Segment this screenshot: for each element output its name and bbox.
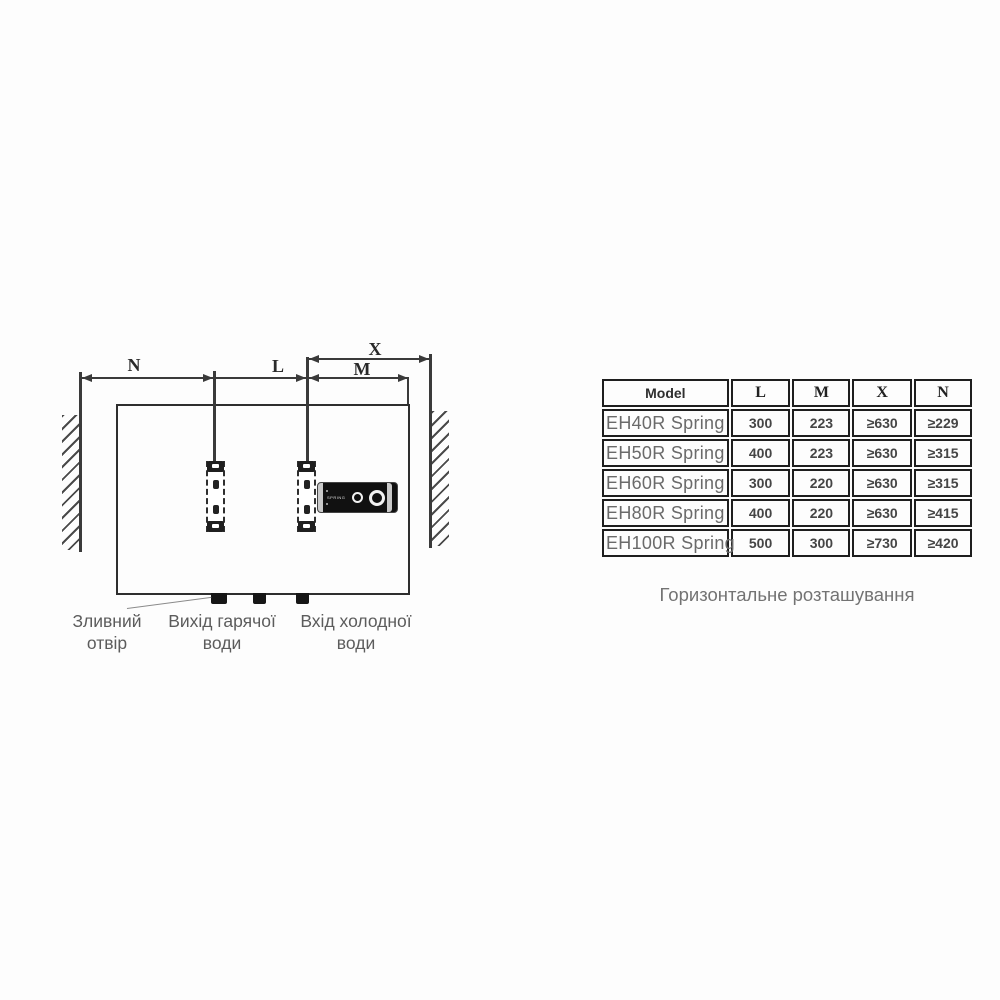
- model-name: EH40R Spring: [602, 409, 729, 437]
- panel-indicator-dot: [326, 490, 328, 492]
- model-name: EH60R Spring: [602, 469, 729, 497]
- mounting-bracket-right: [297, 461, 316, 532]
- orientation-caption: Горизонтальне розташування: [600, 584, 974, 606]
- value-n: ≥420: [914, 529, 972, 557]
- value-l: 400: [731, 499, 791, 527]
- bracket-bottom-cap: [298, 521, 315, 532]
- value-m: 300: [792, 529, 850, 557]
- value-x: ≥630: [852, 469, 912, 497]
- dim-arrow-m-right: [398, 374, 408, 382]
- bracket-bottom-cap: [207, 521, 224, 532]
- col-header-x: X: [852, 379, 912, 407]
- label-drain-line1: Зливний: [52, 610, 162, 632]
- value-l: 500: [731, 529, 791, 557]
- value-m: 220: [792, 469, 850, 497]
- spec-table: Model L M X N EH40R Spring 300 223 ≥630 …: [600, 377, 974, 559]
- value-l: 400: [731, 439, 791, 467]
- col-header-l: L: [731, 379, 791, 407]
- dim-arrow-n-right: [203, 374, 213, 382]
- model-name: EH80R Spring: [602, 499, 729, 527]
- bracket-slot: [212, 524, 219, 528]
- dim-arrow-l-right: [296, 374, 306, 382]
- dim-label-n: N: [122, 356, 146, 374]
- value-n: ≥315: [914, 469, 972, 497]
- value-m: 220: [792, 499, 850, 527]
- drain-leader-line: [127, 597, 211, 609]
- dim-label-x: X: [363, 340, 387, 358]
- dim-label-l: L: [266, 357, 290, 375]
- value-n: ≥229: [914, 409, 972, 437]
- bracket-slot: [303, 524, 310, 528]
- hanger-line-left: [213, 371, 216, 461]
- model-name: EH50R Spring: [602, 439, 729, 467]
- panel-dial-large: [369, 490, 385, 506]
- cold-water-port: [296, 593, 309, 604]
- control-panel: SPRING: [317, 482, 398, 513]
- wall-hatch-left: [62, 415, 79, 550]
- table-row: EH80R Spring 400 220 ≥630 ≥415: [602, 499, 972, 527]
- col-header-model: Model: [602, 379, 729, 407]
- dim-arrow-x-left: [309, 355, 319, 363]
- value-m: 223: [792, 439, 850, 467]
- hanger-line-right: [306, 357, 309, 461]
- col-header-m: M: [792, 379, 850, 407]
- panel-brand-label: SPRING: [327, 496, 345, 500]
- value-l: 300: [731, 409, 791, 437]
- value-n: ≥315: [914, 439, 972, 467]
- dim-arrow-n-left: [82, 374, 92, 382]
- label-hot-line2: води: [150, 632, 294, 654]
- table-row: EH50R Spring 400 223 ≥630 ≥315: [602, 439, 972, 467]
- bracket-slot: [212, 464, 219, 468]
- bracket-keyhole: [304, 505, 310, 514]
- table-row: EH60R Spring 300 220 ≥630 ≥315: [602, 469, 972, 497]
- model-name: EH100R Spring: [602, 529, 729, 557]
- label-drain-line2: отвір: [52, 632, 162, 654]
- dim-line-n-l: [82, 377, 307, 379]
- dim-arrow-x-right: [419, 355, 429, 363]
- value-l: 300: [731, 469, 791, 497]
- dim-label-m: M: [350, 360, 374, 378]
- bracket-keyhole: [213, 480, 219, 489]
- label-cold-water-inlet: Вхід холодної води: [284, 610, 428, 654]
- wall-line-left: [79, 372, 82, 552]
- table-row: EH100R Spring 500 300 ≥730 ≥420: [602, 529, 972, 557]
- bracket-keyhole: [304, 480, 310, 489]
- col-header-n: N: [914, 379, 972, 407]
- hot-water-port: [253, 593, 266, 604]
- table-header-row: Model L M X N: [602, 379, 972, 407]
- table-row: EH40R Spring 300 223 ≥630 ≥229: [602, 409, 972, 437]
- dim-arrow-m-left: [309, 374, 319, 382]
- value-x: ≥630: [852, 439, 912, 467]
- value-x: ≥730: [852, 529, 912, 557]
- value-x: ≥630: [852, 409, 912, 437]
- bracket-keyhole: [213, 505, 219, 514]
- page: N L M X SPRING Зливний отвір Вихід гаряч…: [0, 0, 1000, 1000]
- label-drain: Зливний отвір: [52, 610, 162, 654]
- wall-hatch-right: [432, 411, 449, 546]
- panel-dial-small: [352, 492, 363, 503]
- label-cold-line1: Вхід холодної: [284, 610, 428, 632]
- value-m: 223: [792, 409, 850, 437]
- panel-endcap-left: [318, 483, 323, 512]
- label-cold-line2: води: [284, 632, 428, 654]
- drain-port: [211, 593, 227, 604]
- panel-indicator-dot: [326, 503, 328, 505]
- value-n: ≥415: [914, 499, 972, 527]
- bracket-top-cap: [298, 461, 315, 472]
- label-hot-water-outlet: Вихід гарячої води: [150, 610, 294, 654]
- value-x: ≥630: [852, 499, 912, 527]
- label-hot-line1: Вихід гарячої: [150, 610, 294, 632]
- bracket-slot: [303, 464, 310, 468]
- mounting-bracket-left: [206, 461, 225, 532]
- panel-endcap-right: [387, 483, 392, 512]
- bracket-top-cap: [207, 461, 224, 472]
